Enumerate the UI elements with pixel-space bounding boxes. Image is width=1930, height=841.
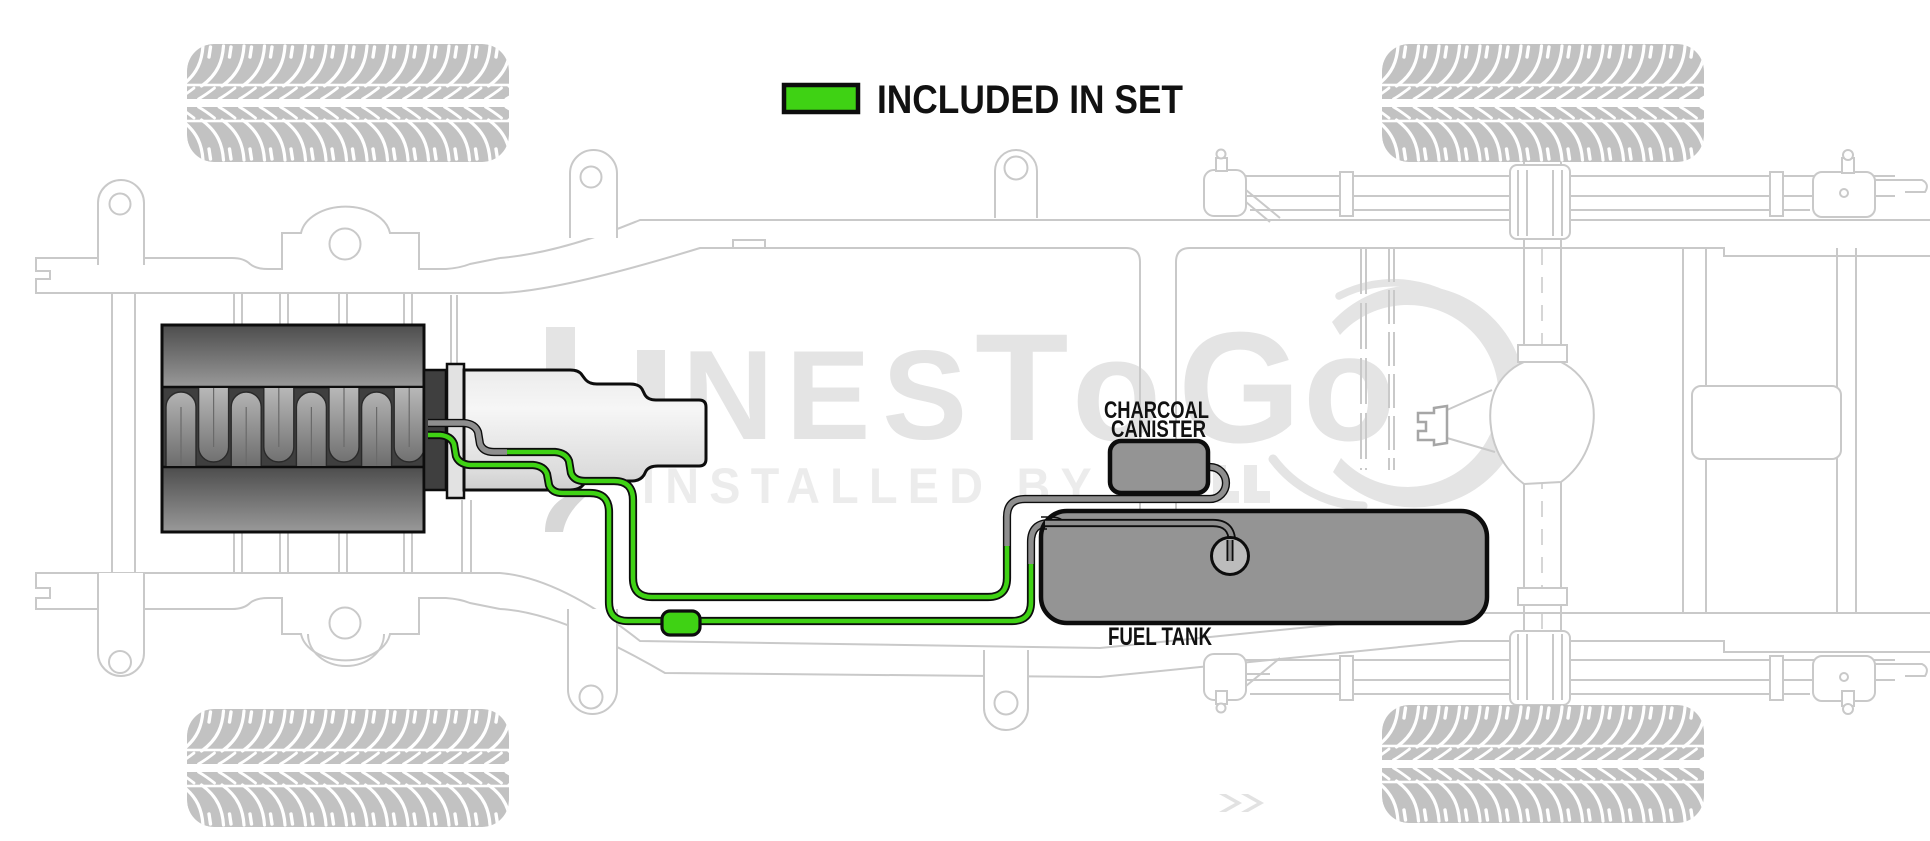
svg-text:NES: NES (682, 324, 979, 466)
svg-text:INCLUDED IN SET: INCLUDED IN SET (877, 78, 1183, 122)
svg-text:T: T (975, 302, 1068, 473)
svg-text:INSTALLED BY: INSTALLED BY (642, 458, 1102, 514)
svg-text:o: o (1303, 303, 1396, 473)
svg-text:FUEL TANK: FUEL TANK (1108, 623, 1212, 651)
svg-text:CANISTER: CANISTER (1111, 416, 1206, 443)
